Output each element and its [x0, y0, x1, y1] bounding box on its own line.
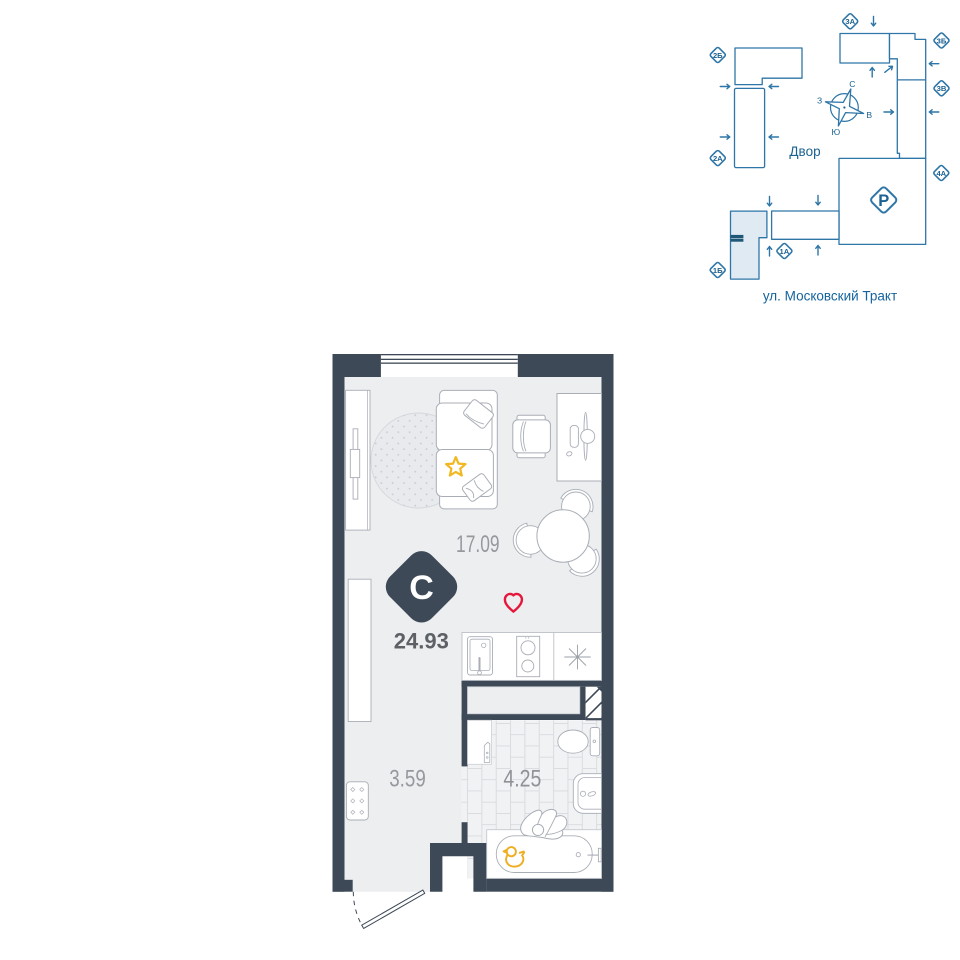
svg-text:Ю: Ю: [832, 127, 841, 137]
svg-text:С: С: [849, 79, 855, 89]
svg-text:4А: 4А: [936, 169, 946, 178]
svg-text:17.09: 17.09: [456, 531, 500, 558]
svg-text:З: З: [817, 96, 822, 106]
svg-text:В: В: [866, 110, 872, 120]
svg-text:4.25: 4.25: [503, 766, 541, 793]
svg-text:24.93: 24.93: [394, 629, 449, 654]
svg-text:3В: 3В: [937, 84, 947, 93]
svg-text:2Б: 2Б: [713, 51, 723, 60]
svg-text:Двор: Двор: [789, 144, 820, 159]
svg-text:Р: Р: [878, 192, 889, 210]
svg-text:ул. Московский Тракт: ул. Московский Тракт: [763, 289, 897, 304]
svg-text:3.59: 3.59: [389, 765, 426, 792]
svg-text:С: С: [409, 569, 434, 607]
svg-text:3А: 3А: [845, 17, 855, 26]
svg-text:1Б: 1Б: [713, 266, 723, 275]
svg-text:3Б: 3Б: [937, 36, 947, 45]
svg-text:1А: 1А: [780, 247, 790, 256]
svg-text:2А: 2А: [713, 154, 723, 163]
